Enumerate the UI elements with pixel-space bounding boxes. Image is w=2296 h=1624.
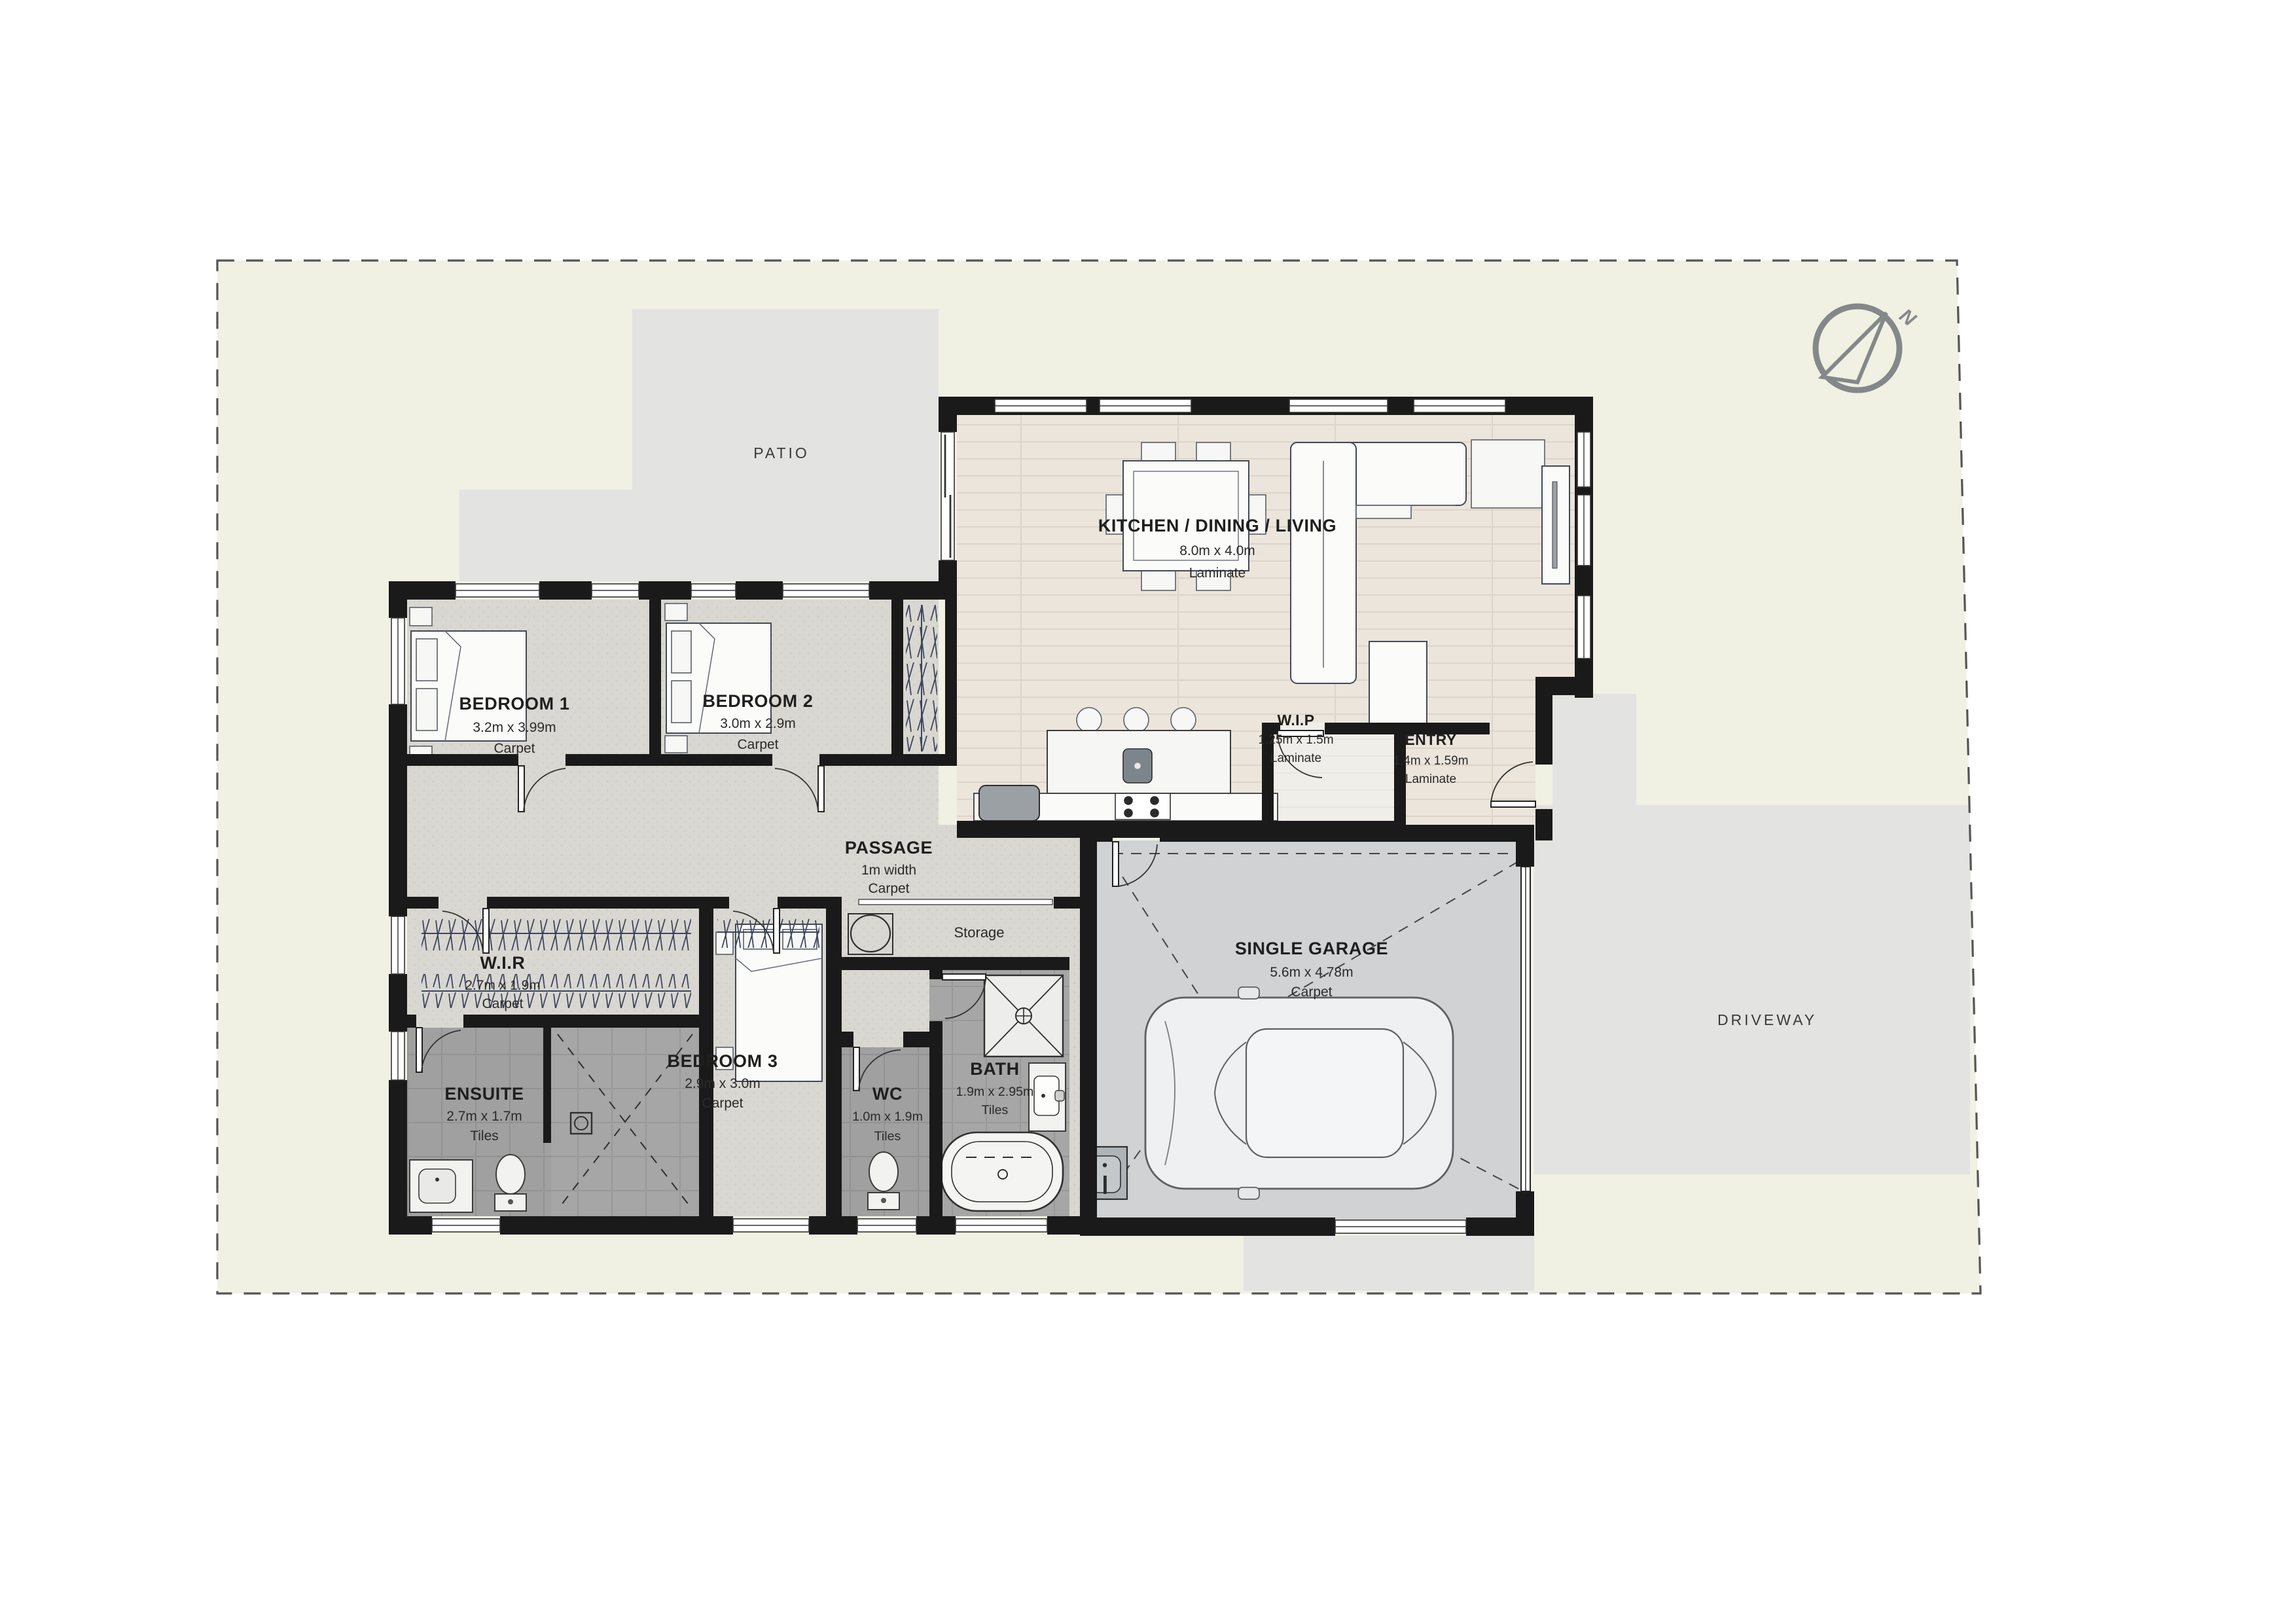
label-entry-floor: Laminate <box>1405 772 1456 786</box>
label-ensuite-dims: 2.7m x 1.7m <box>446 1109 522 1124</box>
porch-paving <box>1552 694 1636 806</box>
storage-shelf <box>859 899 1052 905</box>
label-wip-name: W.I.P <box>1278 712 1315 729</box>
label-kitchen-dims: 8.0m x 4.0m <box>1179 543 1255 558</box>
label-ensuite-floor: Tiles <box>470 1128 499 1144</box>
wc-toilet <box>868 1152 899 1210</box>
floorplan-canvas: KITCHEN / DINING / LIVING 8.0m x 4.0m La… <box>0 0 2296 1624</box>
label-wip-floor: Laminate <box>1270 751 1321 765</box>
label-garage-dims: 5.6m x 4.78m <box>1270 965 1353 980</box>
side-table <box>1471 440 1545 508</box>
label-passage-name: PASSAGE <box>845 838 933 857</box>
label-bath-name: BATH <box>970 1059 1019 1079</box>
tv-cabinet <box>1542 466 1570 584</box>
label-bedroom2-name: BEDROOM 2 <box>703 691 814 711</box>
floorplan-page: KITCHEN / DINING / LIVING 8.0m x 4.0m La… <box>0 0 2296 1624</box>
label-storage: Storage <box>954 924 1004 941</box>
driveway-paving <box>1534 805 1970 1174</box>
label-kitchen-floor: Laminate <box>1189 566 1246 581</box>
car <box>1145 987 1453 1199</box>
label-bedroom1-dims: 3.2m x 3.99m <box>473 720 556 735</box>
label-patio: PATIO <box>753 444 810 461</box>
ensuite-toilet <box>496 1155 525 1194</box>
garage-door <box>1521 867 1530 1191</box>
label-bedroom2-floor: Carpet <box>737 737 778 752</box>
label-passage-floor: Carpet <box>868 881 909 896</box>
label-kitchen-name: KITCHEN / DINING / LIVING <box>1098 516 1337 535</box>
label-ensuite-name: ENSUITE <box>444 1084 524 1104</box>
label-bedroom1-floor: Carpet <box>493 741 535 756</box>
label-garage-name: SINGLE GARAGE <box>1235 939 1388 958</box>
label-wir-floor: Carpet <box>482 996 523 1011</box>
paving-below-garage <box>1244 1236 1534 1291</box>
label-bedroom3-name: BEDROOM 3 <box>668 1051 778 1071</box>
hall-closet <box>906 605 937 751</box>
cooktop <box>1115 793 1170 820</box>
label-bedroom3-dims: 2.9m x 3.0m <box>685 1076 761 1091</box>
label-bedroom3-floor: Carpet <box>702 1096 743 1111</box>
label-wc-name: WC <box>872 1084 903 1104</box>
fridge <box>979 785 1039 821</box>
label-wc-dims: 1.0m x 1.9m <box>852 1110 923 1124</box>
label-garage-floor: Carpet <box>1291 984 1332 1000</box>
label-bedroom1-name: BEDROOM 1 <box>459 694 570 713</box>
label-driveway: DRIVEWAY <box>1717 1011 1817 1028</box>
label-wip-dims: 1.25m x 1.5m <box>1258 733 1333 747</box>
label-bath-dims: 1.9m x 2.95m <box>956 1085 1034 1099</box>
label-wir-name: W.I.R <box>480 953 526 973</box>
label-entry-dims: 1.4m x 1.59m <box>1393 754 1468 768</box>
label-bedroom2-dims: 3.0m x 2.9m <box>720 716 796 731</box>
label-bath-floor: Tiles <box>982 1103 1009 1117</box>
patio-slider-door <box>941 432 954 560</box>
coffee-table <box>1369 641 1427 725</box>
label-wir-dims: 2.7m x 1.9m <box>465 978 541 993</box>
bedroom3-wardrobe <box>717 916 819 948</box>
label-passage-dims: 1m width <box>861 863 916 878</box>
label-entry-name: ENTRY <box>1405 731 1456 748</box>
label-wc-floor: Tiles <box>874 1129 901 1144</box>
